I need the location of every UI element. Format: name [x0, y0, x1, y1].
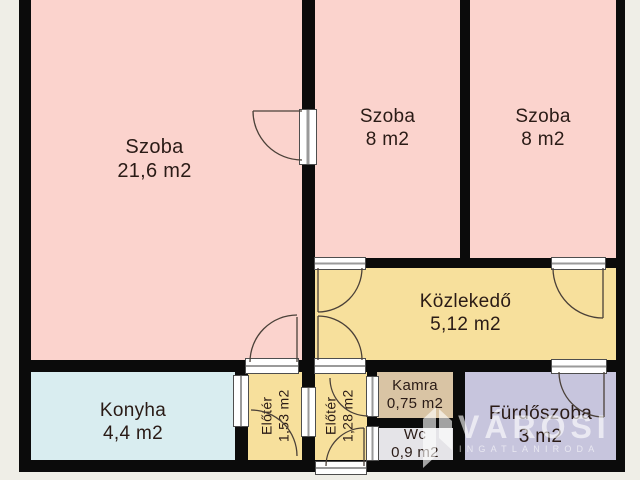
watermark-brand-text: VÁROSI	[458, 409, 611, 446]
floor-plan: Szoba 21,6 m2 Szoba 8 m2 Szoba 8 m2 Közl…	[0, 0, 640, 480]
door-arc-middleroom-hall	[318, 268, 362, 312]
watermark: VÁROSI INGATLANIRODA	[414, 398, 624, 462]
door-arc-entrance	[326, 428, 364, 466]
door-arc-bigroom-eloter	[250, 315, 297, 362]
door-arc-rightroom-hall	[553, 268, 603, 318]
door-arc-hall-eloter128	[318, 316, 362, 360]
watermark-tagline-text: INGATLANIRODA	[459, 444, 599, 454]
door-arc-eloter-kamra	[330, 378, 368, 416]
watermark-logo-icon	[419, 403, 455, 469]
door-arc-bigroom-middleroom	[253, 111, 302, 160]
door-arc-konyha-eloter	[251, 410, 297, 456]
